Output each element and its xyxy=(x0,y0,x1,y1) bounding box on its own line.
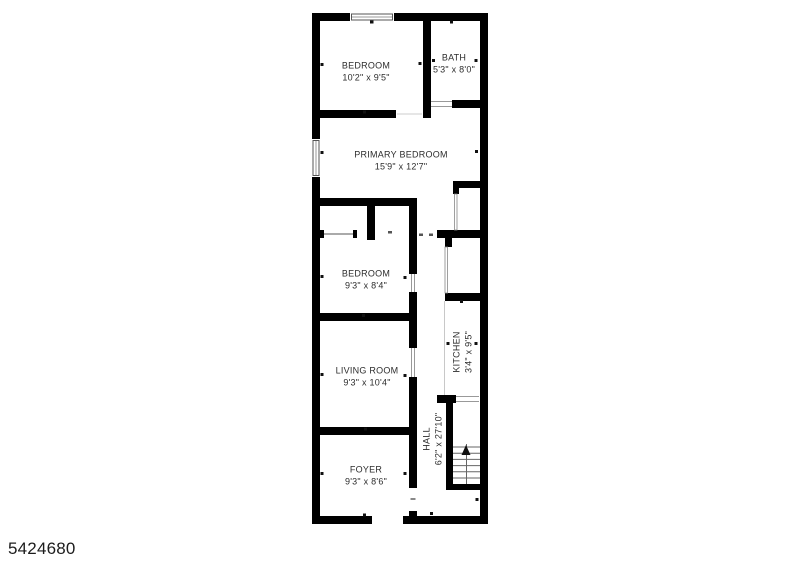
room-label-primary-bedroom: PRIMARY BEDROOM 15'9" x 12'7" xyxy=(354,150,447,173)
photo-id: 5424680 xyxy=(8,539,76,559)
room-dimensions: 9'3" x 8'6" xyxy=(345,476,387,488)
entry-door-opening xyxy=(372,515,403,525)
room-name: KITCHEN xyxy=(452,331,464,373)
room-label-foyer: FOYER 9'3" x 8'6" xyxy=(345,465,387,488)
floorplan-image: BEDROOM 10'2" x 9'5" BATH 5'3" x 8'0" PR… xyxy=(0,0,800,564)
stairs xyxy=(453,444,480,484)
room-dimensions: 9'3" x 8'4" xyxy=(342,280,390,292)
wall-right xyxy=(480,13,488,524)
room-name: BEDROOM xyxy=(342,61,390,73)
floorplan-drawing xyxy=(0,0,800,564)
room-dimensions: 9'3" x 10'4" xyxy=(336,377,399,389)
room-label-living-room: LIVING ROOM 9'3" x 10'4" xyxy=(336,366,399,389)
room-dimensions: 15'9" x 12'7" xyxy=(354,161,447,173)
room-label-kitchen: KITCHEN 3'4" x 9'5" xyxy=(452,331,475,373)
room-name: PRIMARY BEDROOM xyxy=(354,150,447,162)
wall-left xyxy=(312,13,320,524)
room-name: HALL xyxy=(422,413,434,466)
wall-top xyxy=(312,13,488,21)
room-dimensions: 6'2" x 27'10" xyxy=(433,413,445,466)
room-dimensions: 10'2" x 9'5" xyxy=(342,72,390,84)
room-dimensions: 3'4" x 9'5" xyxy=(463,331,475,373)
room-name: LIVING ROOM xyxy=(336,366,399,378)
room-name: BATH xyxy=(433,53,475,65)
room-dimensions: 5'3" x 8'0" xyxy=(433,64,475,76)
window-left xyxy=(311,139,321,177)
room-label-bath: BATH 5'3" x 8'0" xyxy=(433,53,475,76)
room-name: BEDROOM xyxy=(342,269,390,281)
room-label-hall: HALL 6'2" x 27'10" xyxy=(422,413,445,466)
room-name: FOYER xyxy=(345,465,387,477)
room-label-bedroom-middle: BEDROOM 9'3" x 8'4" xyxy=(342,269,390,292)
room-label-bedroom-top: BEDROOM 10'2" x 9'5" xyxy=(342,61,390,84)
window-top xyxy=(350,12,394,24)
